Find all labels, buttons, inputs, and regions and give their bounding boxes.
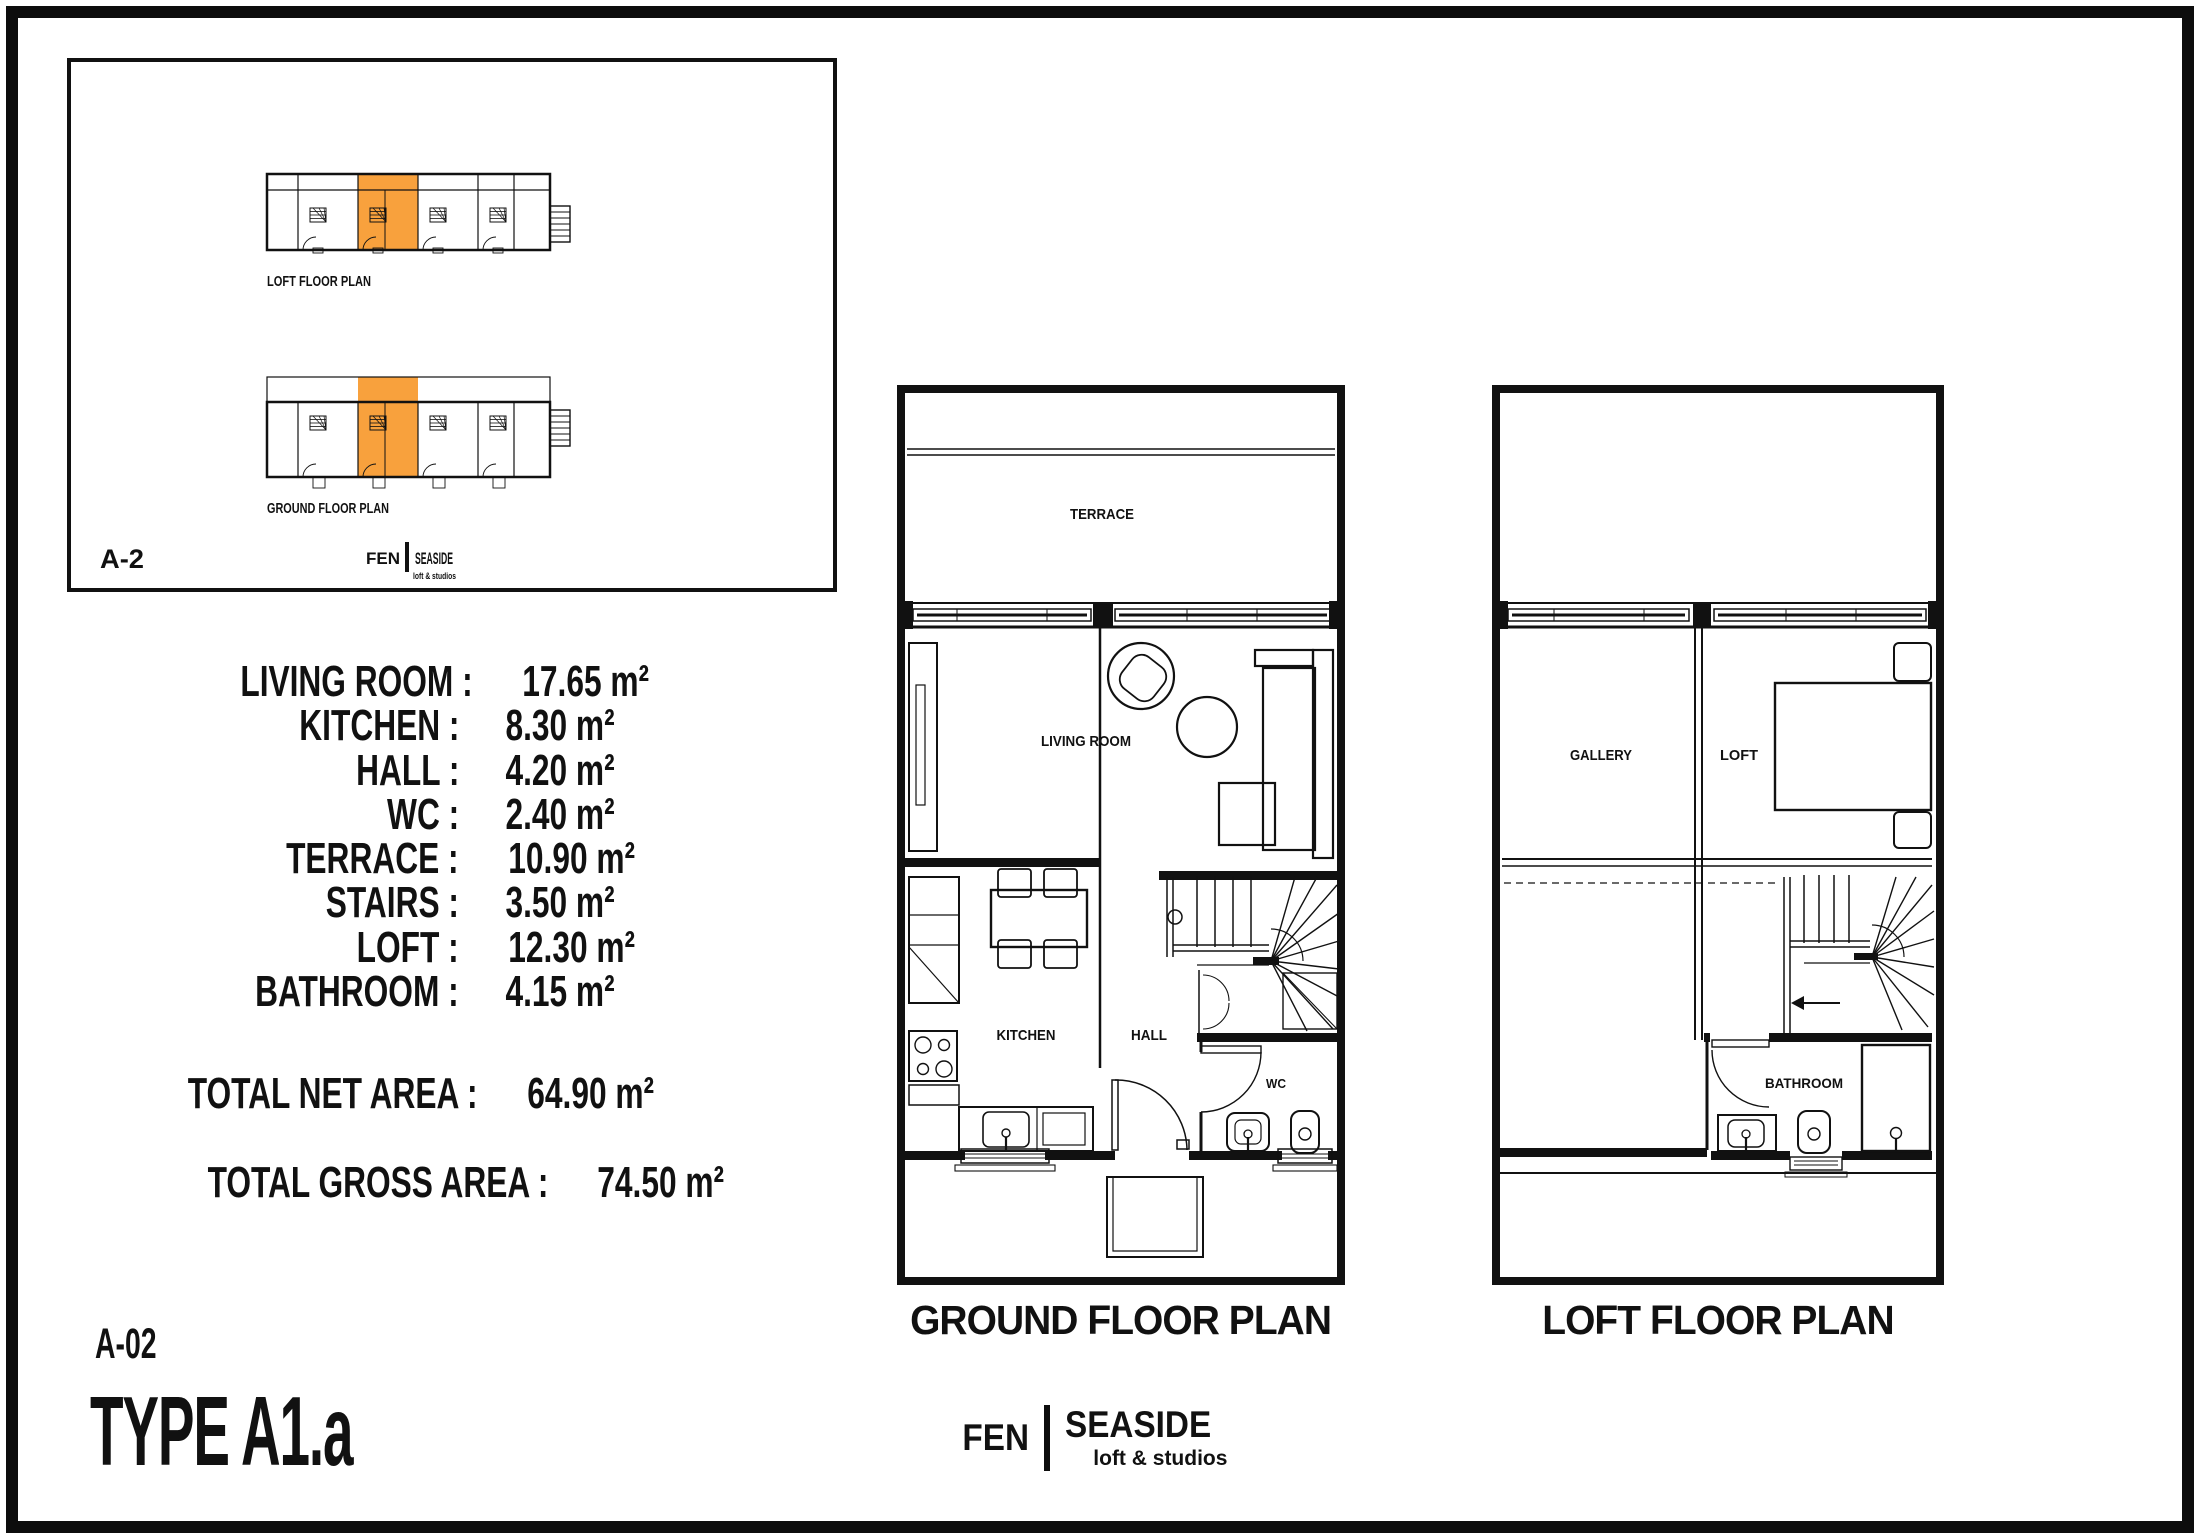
unit-type-title: TYPE A1.a (90, 1375, 559, 1488)
mini-stair-icon (310, 416, 326, 430)
wc-label: WC (1266, 1076, 1287, 1091)
wc-room (1201, 1042, 1319, 1153)
area-row-value: 17.65 m² (522, 660, 649, 704)
area-row: KITCHEN :8.30 m² (150, 704, 615, 748)
external-stair-icon (550, 206, 570, 242)
kitchen-table (991, 890, 1087, 947)
mini-stair-icon (490, 208, 506, 222)
external-stair-icon (550, 410, 570, 446)
total-row-label: TOTAL NET AREA : (188, 1072, 478, 1116)
mini-stair-icon (490, 416, 506, 430)
area-row-label: KITCHEN : (299, 704, 459, 748)
coffee-table (1219, 783, 1275, 845)
highlighted-unit-loft (358, 174, 418, 250)
understair-door-arc (1203, 1003, 1229, 1029)
pillow (1894, 812, 1931, 848)
area-row-value: 12.30 m² (508, 926, 635, 970)
wc-door-arc (1201, 1052, 1261, 1112)
pillow (1894, 643, 1931, 681)
chair (998, 940, 1031, 968)
sheet-code: A-02 (95, 1320, 188, 1369)
area-row-value: 4.15 m² (506, 970, 615, 1014)
terrace-label: TERRACE (1070, 506, 1134, 523)
area-row-value: 4.20 m² (506, 749, 615, 793)
area-row: BATHROOM :4.15 m² (150, 970, 615, 1014)
inset-brand-divider (405, 542, 409, 572)
ground-closet (909, 643, 937, 851)
total-row-value: 74.50 m² (598, 1161, 725, 1205)
highlighted-unit-ground (358, 377, 418, 477)
bathroom-door-arc (1712, 1050, 1769, 1107)
loft-stairs (1784, 875, 1934, 1033)
toilet (1291, 1111, 1319, 1153)
gallery-label: GALLERY (1570, 747, 1632, 764)
sofa-seat (1263, 668, 1315, 850)
inset-brand-right: SEASIDE (415, 549, 453, 568)
area-row-label: BATHROOM : (255, 970, 459, 1014)
inset-ground-strip: GROUND FLOOR PLAN (267, 377, 570, 517)
total-row: TOTAL GROSS AREA :74.50 m² (75, 1161, 570, 1205)
ground-room-labels: TERRACE LIVING ROOM KITCHEN HALL WC (997, 506, 1287, 1091)
loft-floor-plan-drawing: GALLERY LOFT BATHROOM (1492, 385, 1944, 1285)
area-row: LIVING ROOM :17.65 m² (150, 660, 615, 704)
area-row-label: TERRACE : (287, 837, 459, 881)
area-row: HALL :4.20 m² (150, 749, 615, 793)
living-room-furniture (1108, 643, 1333, 858)
total-row-label: TOTAL GROSS AREA : (208, 1161, 549, 1205)
mini-stair-icon (430, 416, 446, 430)
mini-stair-icon (310, 208, 326, 222)
area-row-label: HALL : (356, 749, 459, 793)
chair (998, 869, 1031, 897)
living-room-label: LIVING ROOM (1041, 733, 1131, 750)
area-row: LOFT :12.30 m² (150, 926, 615, 970)
brand-right: SEASIDE (1065, 1405, 1227, 1445)
area-row-label: WC : (387, 793, 459, 837)
loft-plan-title: LOFT FLOOR PLAN (1492, 1297, 1944, 1344)
ground-bottom-windows (955, 1149, 1337, 1257)
wc-door-leaf (1201, 1046, 1261, 1053)
inset-brand-tagline: loft & studios (413, 571, 456, 582)
shower (1862, 1045, 1930, 1151)
bed (1775, 683, 1931, 810)
toilet (1798, 1111, 1830, 1153)
area-row-value: 10.90 m² (508, 837, 635, 881)
kitchen-label: KITCHEN (997, 1027, 1056, 1044)
chair (1044, 940, 1077, 968)
round-table (1177, 697, 1237, 757)
inset-brand-logo: FEN SEASIDE loft & studios (366, 542, 456, 582)
total-row: TOTAL NET AREA :64.90 m² (75, 1072, 570, 1116)
inset-brand-left: FEN (366, 549, 400, 568)
inset-ground-strip-label: GROUND FLOOR PLAN (267, 501, 389, 517)
area-row-label: LOFT : (357, 926, 459, 970)
brand-left: FEN (955, 1417, 1029, 1459)
sofa-arm (1255, 650, 1313, 666)
loft-label: LOFT (1720, 747, 1758, 764)
area-row-value: 3.50 m² (506, 881, 615, 925)
bathroom-door-leaf (1712, 1040, 1769, 1047)
floor-plan-sheet: LOFT FLOOR PLAN GROUND F (0, 0, 2200, 1539)
mini-stair-icon (430, 208, 446, 222)
area-table: LIVING ROOM :17.65 m² KITCHEN :8.30 m² H… (150, 660, 615, 1014)
inset-unit-code: A-2 (100, 544, 144, 574)
inset-box-border (69, 60, 835, 590)
location-key-inset: LOFT FLOOR PLAN GROUND F (67, 58, 837, 592)
hall-label: HALL (1131, 1027, 1167, 1044)
area-row: STAIRS :3.50 m² (150, 881, 615, 925)
area-row-value: 8.30 m² (506, 704, 615, 748)
entrance-door (1112, 1080, 1189, 1150)
loft-bed (1775, 643, 1931, 848)
ground-plan-title: GROUND FLOOR PLAN (897, 1297, 1345, 1344)
inset-loft-strip-label: LOFT FLOOR PLAN (267, 274, 371, 290)
bathroom-label: BATHROOM (1765, 1075, 1843, 1091)
ground-stairs (1167, 876, 1339, 1033)
ground-floor-plan-drawing: TERRACE LIVING ROOM KITCHEN HALL WC (897, 385, 1345, 1285)
total-row-value: 64.90 m² (527, 1072, 654, 1116)
kitchen-fixtures (909, 869, 1093, 1151)
area-row-label: STAIRS : (326, 881, 459, 925)
brand-logo: FEN SEASIDE loft & studios (955, 1402, 1227, 1474)
chair (1044, 869, 1077, 897)
understair-door-arc (1203, 975, 1229, 1001)
brand-tagline: loft & studios (1093, 1447, 1227, 1471)
brand-divider (1044, 1405, 1050, 1471)
area-row-value: 2.40 m² (506, 793, 615, 837)
entrance-step (1107, 1177, 1203, 1257)
area-row: TERRACE :10.90 m² (150, 837, 615, 881)
area-row: WC :2.40 m² (150, 793, 615, 837)
inset-loft-strip: LOFT FLOOR PLAN (267, 174, 570, 290)
armchair (1108, 643, 1174, 709)
area-totals: TOTAL NET AREA :64.90 m² TOTAL GROSS ARE… (75, 1072, 570, 1250)
area-row-label: LIVING ROOM : (240, 660, 472, 704)
